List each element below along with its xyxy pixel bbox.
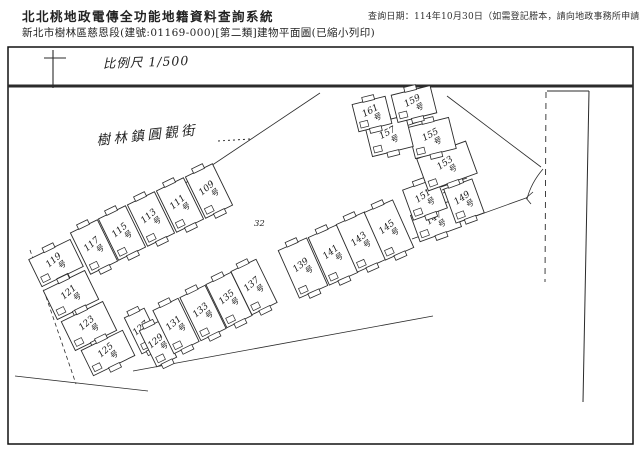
floor-plan-svg: 109号111号113号115号117号119号121号123号125号127号…: [0, 0, 640, 452]
registry-printout-page: 北北桃地政電傳全功能地籍資料查詢系統 查詢日期：114年10月30日（如需登記謄…: [0, 0, 640, 452]
boundary-line: [583, 91, 589, 402]
building-units: 109号111号113号115号117号119号121号123号125号127号…: [27, 81, 486, 379]
boundary-curve: [527, 169, 543, 199]
scale-label: 比例尺 1/500: [103, 53, 190, 71]
street-name-label: 樹林鎮圓觀街: [96, 122, 199, 149]
boundary-line: [218, 139, 250, 141]
boundary-line: [15, 376, 148, 391]
parcel-number-label: 32: [254, 219, 265, 229]
boundary-line: [545, 92, 546, 282]
boundary-line: [526, 192, 533, 198]
